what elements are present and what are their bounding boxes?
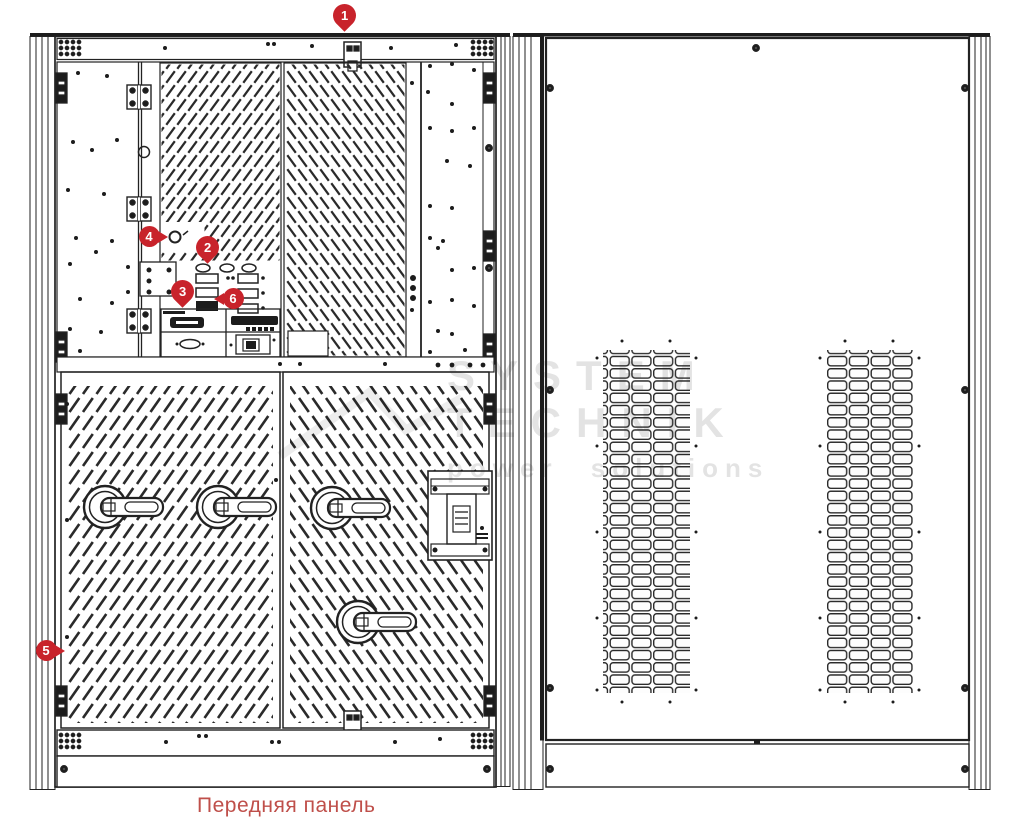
- callout-marker-3: 3: [171, 280, 194, 303]
- left-cabinet: [30, 33, 510, 790]
- right-panel-screws: [410, 62, 476, 354]
- plinth: [546, 744, 969, 787]
- plinth: [57, 756, 494, 787]
- terminal-strip: [231, 316, 278, 325]
- bottom-rail: [57, 730, 494, 756]
- lower-doors: [56, 372, 495, 740]
- circuit-breaker: [428, 471, 492, 560]
- right-trim: [969, 37, 990, 790]
- cabinet-line-art: [0, 0, 1017, 825]
- diagram-caption: Передняя панель: [197, 794, 375, 818]
- right-cabinet: [513, 33, 990, 790]
- callout-marker-4: 4: [139, 226, 160, 247]
- mid-band: [57, 357, 494, 372]
- callout-marker-6: 6: [223, 288, 244, 309]
- left-trim: [30, 37, 55, 790]
- upper-section: [56, 62, 495, 364]
- louver-grid-right: [826, 350, 913, 693]
- callout-marker-5: 5: [36, 640, 57, 661]
- left-trim: [513, 37, 544, 790]
- epo-button: [170, 232, 181, 243]
- control-panel: [161, 264, 280, 357]
- right-trim: [496, 37, 510, 788]
- upper-vent-right: [286, 65, 405, 356]
- callout-marker-1: 1: [333, 4, 356, 27]
- left-panel-screws: [66, 71, 130, 353]
- callout-marker-2: 2: [196, 236, 219, 259]
- louver-grid-left: [603, 350, 690, 693]
- front-panel-diagram: SYSTEM TECHNIK power solutions 1 2 3 4 5…: [0, 0, 1017, 825]
